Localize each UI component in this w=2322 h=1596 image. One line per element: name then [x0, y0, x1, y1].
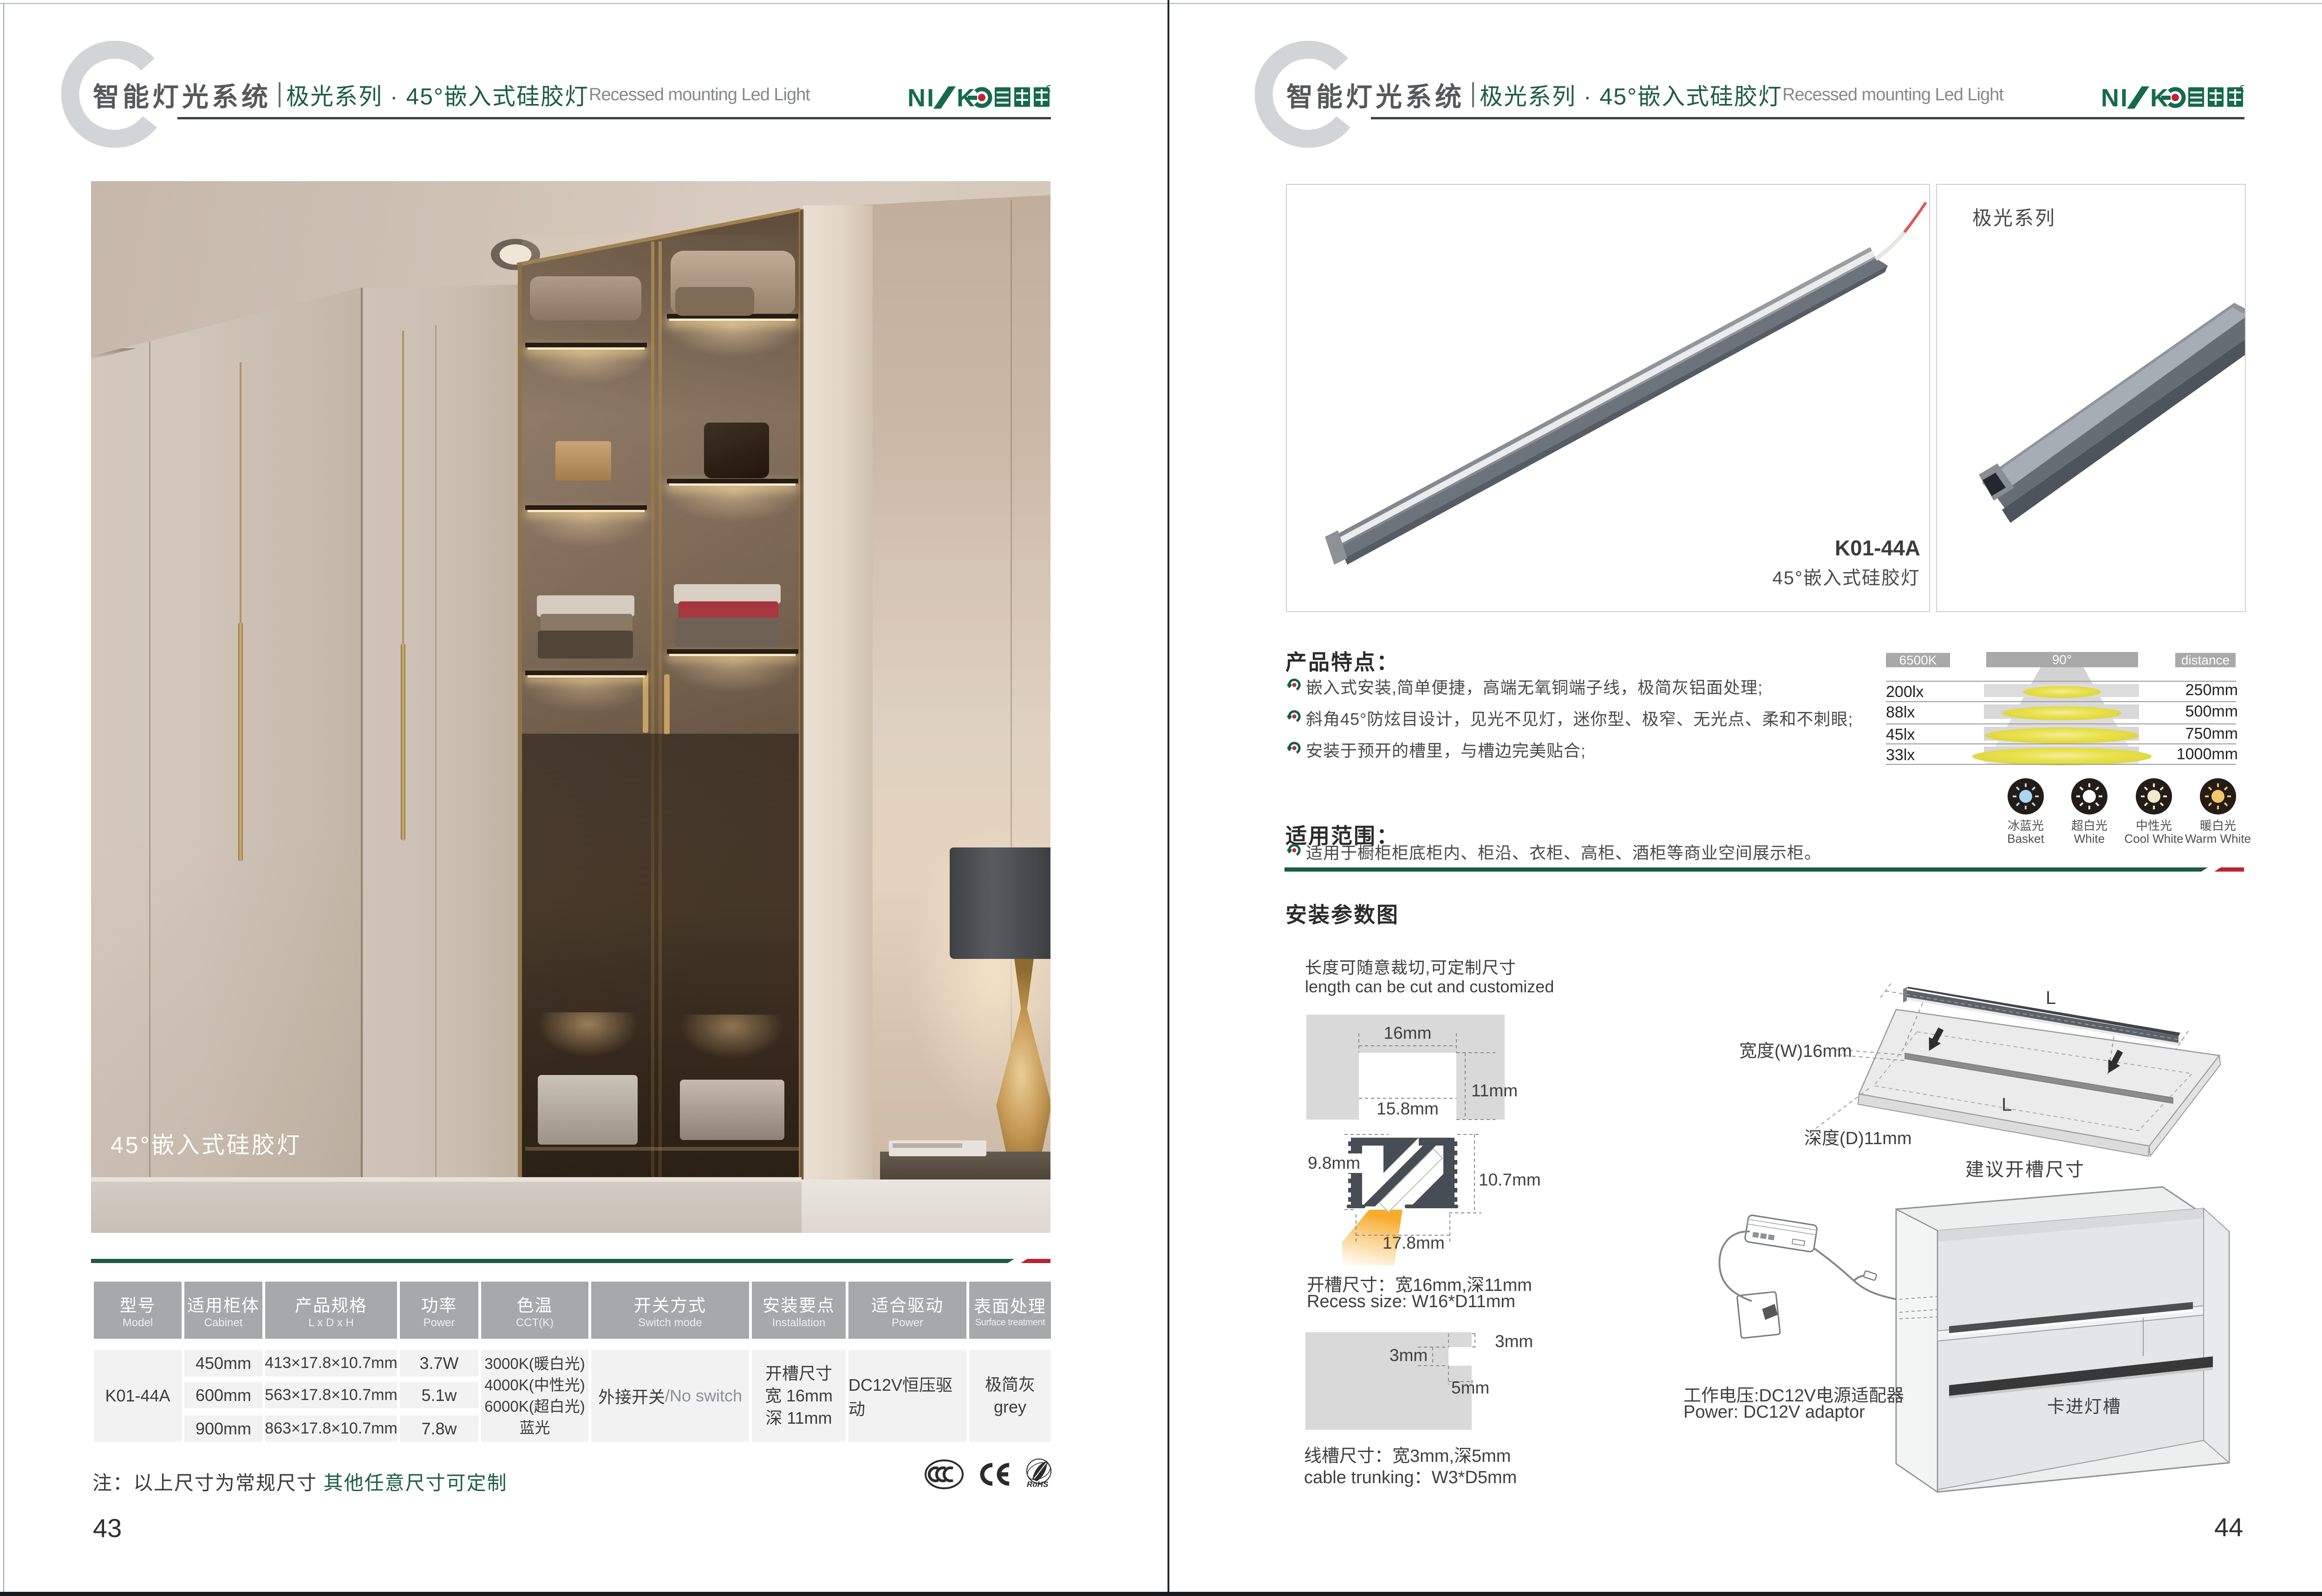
svg-text:超白光: 超白光 [2071, 819, 2107, 833]
svg-text:15.8mm: 15.8mm [1376, 1099, 1439, 1118]
svg-text:中性光: 中性光 [2136, 819, 2172, 833]
svg-text:RoHS: RoHS [1027, 1480, 1049, 1489]
svg-text:200lx: 200lx [1886, 683, 1924, 701]
svg-text:1000mm: 1000mm [2177, 745, 2238, 763]
svg-text:Basket: Basket [2007, 832, 2044, 846]
svg-text:暖白光: 暖白光 [2200, 819, 2236, 833]
svg-text:冰蓝光: 冰蓝光 [2008, 819, 2044, 833]
svg-text:White: White [2074, 832, 2105, 846]
svg-text:500mm: 500mm [2185, 703, 2238, 720]
svg-text:16mm: 16mm [1384, 1023, 1432, 1042]
svg-text:45lx: 45lx [1886, 726, 1915, 743]
svg-text:distance: distance [2181, 653, 2230, 667]
svg-text:Cool White: Cool White [2124, 832, 2183, 846]
svg-text:NI: NI [908, 85, 935, 111]
svg-text:88lx: 88lx [1886, 704, 1915, 721]
svg-text:Warm White: Warm White [2185, 832, 2251, 846]
svg-text:90°: 90° [2052, 652, 2072, 667]
svg-text:6500K: 6500K [1899, 653, 1937, 667]
svg-text:33lx: 33lx [1886, 746, 1915, 764]
svg-text:L: L [2002, 1094, 2012, 1115]
svg-text:NI: NI [2102, 85, 2129, 111]
svg-text:250mm: 250mm [2185, 681, 2238, 699]
svg-text:卡进灯槽: 卡进灯槽 [2047, 1397, 2121, 1417]
svg-text:45°嵌入式硅胶灯: 45°嵌入式硅胶灯 [1773, 568, 1921, 588]
svg-text:K01-44A: K01-44A [1835, 536, 1920, 560]
svg-text:750mm: 750mm [2185, 725, 2238, 743]
svg-text:L: L [2046, 988, 2056, 1008]
